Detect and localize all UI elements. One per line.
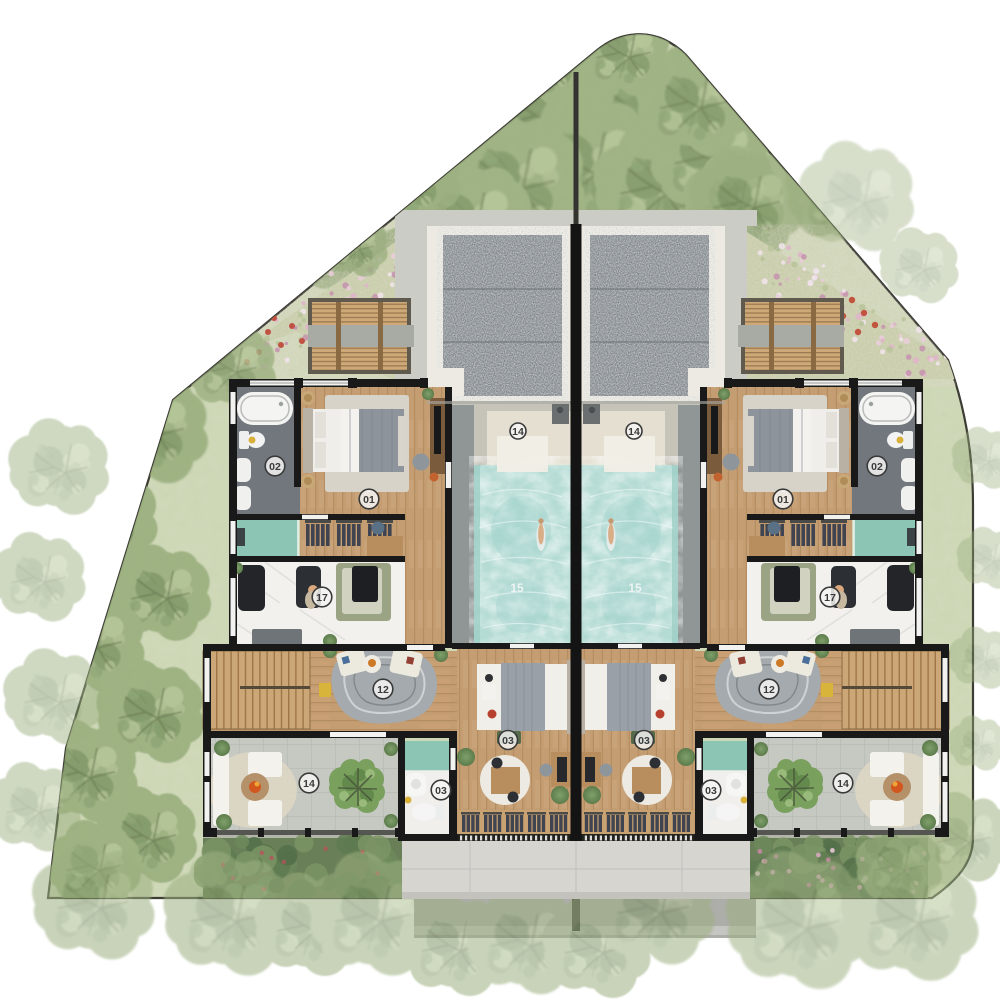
- svg-text:12: 12: [763, 684, 775, 696]
- svg-text:03: 03: [638, 735, 650, 747]
- svg-text:03: 03: [502, 735, 514, 747]
- svg-text:03: 03: [705, 785, 717, 797]
- svg-text:02: 02: [269, 461, 281, 473]
- svg-text:17: 17: [316, 592, 328, 604]
- svg-text:01: 01: [363, 494, 375, 506]
- svg-text:17: 17: [824, 592, 836, 604]
- svg-text:14: 14: [303, 778, 315, 790]
- svg-text:14: 14: [628, 426, 640, 438]
- svg-text:12: 12: [377, 684, 389, 696]
- svg-text:14: 14: [512, 426, 524, 438]
- svg-text:01: 01: [777, 494, 789, 506]
- svg-text:14: 14: [837, 778, 849, 790]
- svg-text:15: 15: [510, 581, 524, 595]
- svg-text:03: 03: [435, 785, 447, 797]
- svg-text:02: 02: [871, 461, 883, 473]
- svg-text:15: 15: [628, 581, 642, 595]
